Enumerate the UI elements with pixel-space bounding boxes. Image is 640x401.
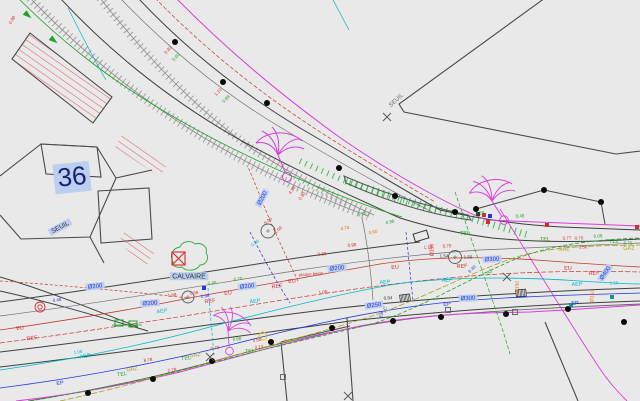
marker-box-icon [413,230,429,242]
plan-label-text: 8.78 [143,357,153,363]
roadside-point-dot [390,318,396,324]
plan-label: 1.08 [273,225,283,235]
storm-ep-line [0,293,640,388]
plan-label: 0.78 [340,225,350,232]
plan-label-text: TEL [486,267,494,277]
roadside-point-dot [85,390,91,396]
marker-square-icon [610,295,614,299]
plan-label: Ø150 [589,289,596,302]
plan-label: 0.90 [297,191,306,201]
survey-cross-icon [344,392,352,400]
storm-service-2 [406,232,413,301]
plan-label-text: 1.56 [464,254,473,259]
plan-label-text: 0.70 [233,276,243,282]
plan-label-text: 0.70 [210,345,220,351]
plan-label: Ø200 [327,264,347,273]
plan-label: REF [271,283,283,290]
plan-label: SEUIL [48,218,73,236]
plan-label: Ø150 [514,281,520,294]
plan-label-text: AEP [571,282,583,288]
plan-label: 1.54 [440,253,449,258]
calvaire-cross-x [172,252,185,265]
plan-label: EU [288,278,296,285]
plan-label: CALVAIRE [170,272,209,280]
plan-label-text: GAZ [283,338,296,345]
plan-label: EP [443,302,451,308]
plan-label: 0.80 [317,251,327,257]
plan-label: EP [56,380,64,387]
plan-label-text: 6.08 [594,233,603,238]
tree-point-dot [452,209,458,215]
tree-point-dot [392,193,398,199]
plan-label-text: 0.68 [232,336,242,342]
plan-label-text: TEL [609,239,619,245]
plan-label: 0.70 [233,276,243,282]
plan-label-text: REF [456,263,468,270]
plan-label-text: Ø150 [589,289,596,302]
branch-road-curb [120,0,432,212]
plan-label: AEP [441,277,453,284]
plan-label: REF [456,263,468,270]
tree-point-dot [264,100,270,106]
plan-label: 0.98 [8,15,17,26]
plan-label: AEP [156,308,168,316]
plan-label-text: 0.98 [347,242,357,248]
plan-label-text: 1.60 [610,280,619,285]
plan-label-text: EU [288,278,296,285]
survey-cross-icon [503,273,511,281]
plan-label: 0.70 [442,243,452,249]
plan-label-text: Ø150 [514,281,520,294]
hatched-strip-1 [115,133,168,177]
plan-label: 0.75 [357,210,367,217]
plan-label: EU [391,264,399,271]
roadside-point-dot [438,314,444,320]
plan-label-text: 1.58 [189,290,199,296]
plan-label-text: Ø300 [485,257,501,264]
plan-label-text: REF [271,283,283,290]
plan-label-text: Ø200 [239,283,255,291]
plan-label-text: 0.98 [250,238,260,247]
plan-label: Ø200 [237,282,257,291]
plan-label-text: plaque beige [299,270,324,277]
plan-label-text: GAZ [558,247,570,253]
plan-label-text: 1.08 [273,225,283,235]
plan-label: TEL [117,371,128,379]
plan-label-text: TEL [245,348,256,355]
plan-label: 1.60 [610,280,619,285]
roadside-point-dot [503,311,509,317]
plan-label: TEL [486,267,494,277]
plan-label-text: TEL [540,237,550,243]
plan-label-text: REF [588,271,600,277]
plan-label: 0.70 [210,345,220,351]
red-utility-circle-inner [38,305,42,309]
plan-label: 2.78 [167,367,177,373]
plan-label-text: 0.48 [515,213,525,219]
plan-label: 0.84 [383,295,393,301]
roadside-point-dot [268,339,274,345]
plan-label-text: 0.60 [252,337,262,343]
plan-label: 1.68 [167,292,177,298]
plan-label-text: AEP [379,279,391,286]
plan-label-text: Ø200 [87,283,103,291]
plan-label: 1.00 [318,289,328,295]
survey-cross-icon [383,113,391,121]
plan-label-text: 36 [56,160,88,193]
cad-viewport: 36SEUILSEUILCALVAIREØ200Ø200Ø200Ø200Ø200… [0,0,640,401]
plan-label-text: 0.60 [368,229,378,236]
plan-label: AEP [249,298,261,305]
ticked-wall-2-spine [100,0,374,215]
plan-label: 0.70 [575,235,584,240]
plan-label-text: 0.78 [340,225,350,232]
plan-label: AEP [79,353,91,361]
plan-label-text: REF [204,298,216,306]
plan-label-text: 0.60 [171,52,181,62]
plan-label-text: Ø200 [329,265,345,273]
sewer-ref-line [0,271,640,343]
plan-label: 8.78 [143,357,153,363]
plan-label-text: AEP [79,353,91,361]
plan-label-text: 0.58 [475,210,485,216]
plan-label: 0.68 [232,336,242,342]
plan-label-text: EU [564,266,572,272]
plan-label: 0.60 [171,52,181,62]
plan-label: plaque beige [299,270,324,277]
plan-label-text: 2.12 [254,344,264,350]
tree-point-dot [336,165,342,171]
plan-label: EP [571,301,579,307]
plan-label-text: 6.70 [624,240,633,245]
hatched-building-area [12,33,112,123]
ticked-wall-2 [100,0,374,215]
plan-label: 1.58 [189,290,199,296]
hatch-layer [12,33,168,266]
plan-label: Ø300 [458,294,477,302]
marker-square-icon [488,214,492,218]
plan-label: 0.77 [563,235,572,240]
plan-label-text: 1.68 [167,292,177,298]
plan-label-text: 0.70 [442,243,452,249]
plan-label-text: GAZ [126,366,139,374]
plan-label: Ø200 [140,299,159,308]
plan-label-text: 0.48 [52,297,62,303]
plan-label-text: TEL [117,371,128,379]
tree-outline-icon [171,242,207,271]
plan-label-text: 0.84 [383,295,393,301]
plan-label: 0.48 [52,297,62,303]
plan-label-text: AEP [156,308,168,316]
roadside-point-dot [329,325,335,331]
plan-label-text: 0.98 [8,15,17,26]
plan-label-text: EP [56,380,64,387]
plan-label: 0.98 [221,94,231,104]
plan-label-text: 2.78 [167,367,177,373]
calvaire-group [171,242,207,271]
plan-label-text: 0.98 [385,218,395,225]
plan-label-text: 0.70 [575,235,584,240]
plan-label: 0.98 [250,238,260,247]
marker-square-icon [545,223,549,227]
plan-label-text: Ø300 [461,296,477,303]
fence-post-dot [598,199,604,205]
walls-layer [30,0,528,235]
plan-label: GAZ [283,338,296,345]
plan-label-text: 0.98 [221,94,231,104]
plan-label: 6.08 [594,233,603,238]
plan-label-text: 0.75 [357,210,367,217]
drain-grate-icon [400,294,411,302]
survey-plan-svg: 36SEUILSEUILCALVAIREØ200Ø200Ø200Ø200Ø200… [0,0,640,401]
parcel-line-bottom-right [545,322,578,401]
plan-label: 1.18 [423,244,433,250]
plan-label: TEL [609,239,619,245]
plan-label-text: 0.77 [563,235,572,240]
plan-label: 6.70 [624,240,633,245]
plan-label: REF [588,271,600,277]
water-service-3 [332,0,349,30]
plan-label-text: TEL [460,230,470,237]
marker-square-icon [635,225,639,229]
plan-label-text: CALVAIRE [172,273,206,280]
plan-label: EU [224,290,232,297]
marker-square-icon [202,286,206,290]
marker-square-icon [486,220,490,224]
plan-label: REF [26,335,38,343]
plan-label-text: 0.50 [579,244,588,249]
plan-label: 0.48 [515,213,525,219]
plan-label-text: EU [16,325,24,332]
plan-label-text: AEP [441,277,453,284]
plan-label: Ø300 [482,255,501,263]
plan-label: TEL [181,355,192,362]
plan-label: GAZ [126,366,139,374]
main-road-south-edge-1 [0,288,640,352]
manhole-cross [453,255,457,259]
plan-label-text: EP [571,301,579,307]
plan-label: 1.56 [464,254,473,259]
symbols-layer [23,10,639,400]
plan-label: 36 [52,160,91,195]
plan-label-text: 0.90 [297,191,306,201]
plan-label-text: REF [26,335,38,343]
tree-point-dot [172,39,178,45]
plan-label: REF [204,298,216,306]
plan-label: EU [16,325,24,332]
plan-label-text: 0.82 [163,45,173,55]
building-top-right [399,0,640,154]
plan-label: 0.98 [347,242,357,248]
plan-label: GAZ [623,246,635,252]
flow-arrow-icon [49,35,60,45]
plan-label-text: Ø200 [143,300,159,307]
plan-label-text: TEL [181,355,192,362]
plan-label: 0.82 [163,45,173,55]
plan-label: GAZ [558,247,570,253]
tree-point-dot [220,79,226,85]
main-road-north-edge [0,242,420,302]
plan-label: 0.60 [252,337,262,343]
plan-label: TEL [460,230,470,237]
plan-label: TEL [540,237,550,243]
plan-label: 0.50 [579,244,588,249]
plan-label: EU [564,266,572,272]
plan-label: Ø200 [255,188,270,208]
plan-label-text: SEUIL [50,220,70,235]
plan-label-text: 0.80 [317,251,327,257]
plan-label-text: EP [443,302,451,308]
plan-label-text: 1.00 [318,289,328,295]
plan-label: 0.98 [385,218,395,225]
plan-label: TEL [245,348,256,355]
plan-label-text: Ø250 [366,302,382,310]
plan-label: AEP [571,282,583,288]
fence-post-dot [541,187,547,193]
plan-label-text: GAZ [623,246,635,252]
plan-label-text: 1.54 [440,253,449,258]
plan-label-text: 0.40 [207,280,217,286]
roadside-point-dot [621,319,627,325]
plan-label: 0.58 [475,210,485,216]
plan-label: 2.12 [254,344,264,350]
plan-label-text: 1.18 [423,244,433,250]
plan-label-text: EU [224,290,232,297]
plan-label: 0.60 [368,229,378,236]
plan-label: 0.40 [207,280,217,286]
plan-label: AEP [379,279,391,286]
plan-label-text: EU [391,264,399,271]
roadside-point-dot [150,376,156,382]
plan-label-text: AEP [249,298,261,305]
hatched-strip-2 [118,228,155,266]
manhole-cross [266,229,270,233]
